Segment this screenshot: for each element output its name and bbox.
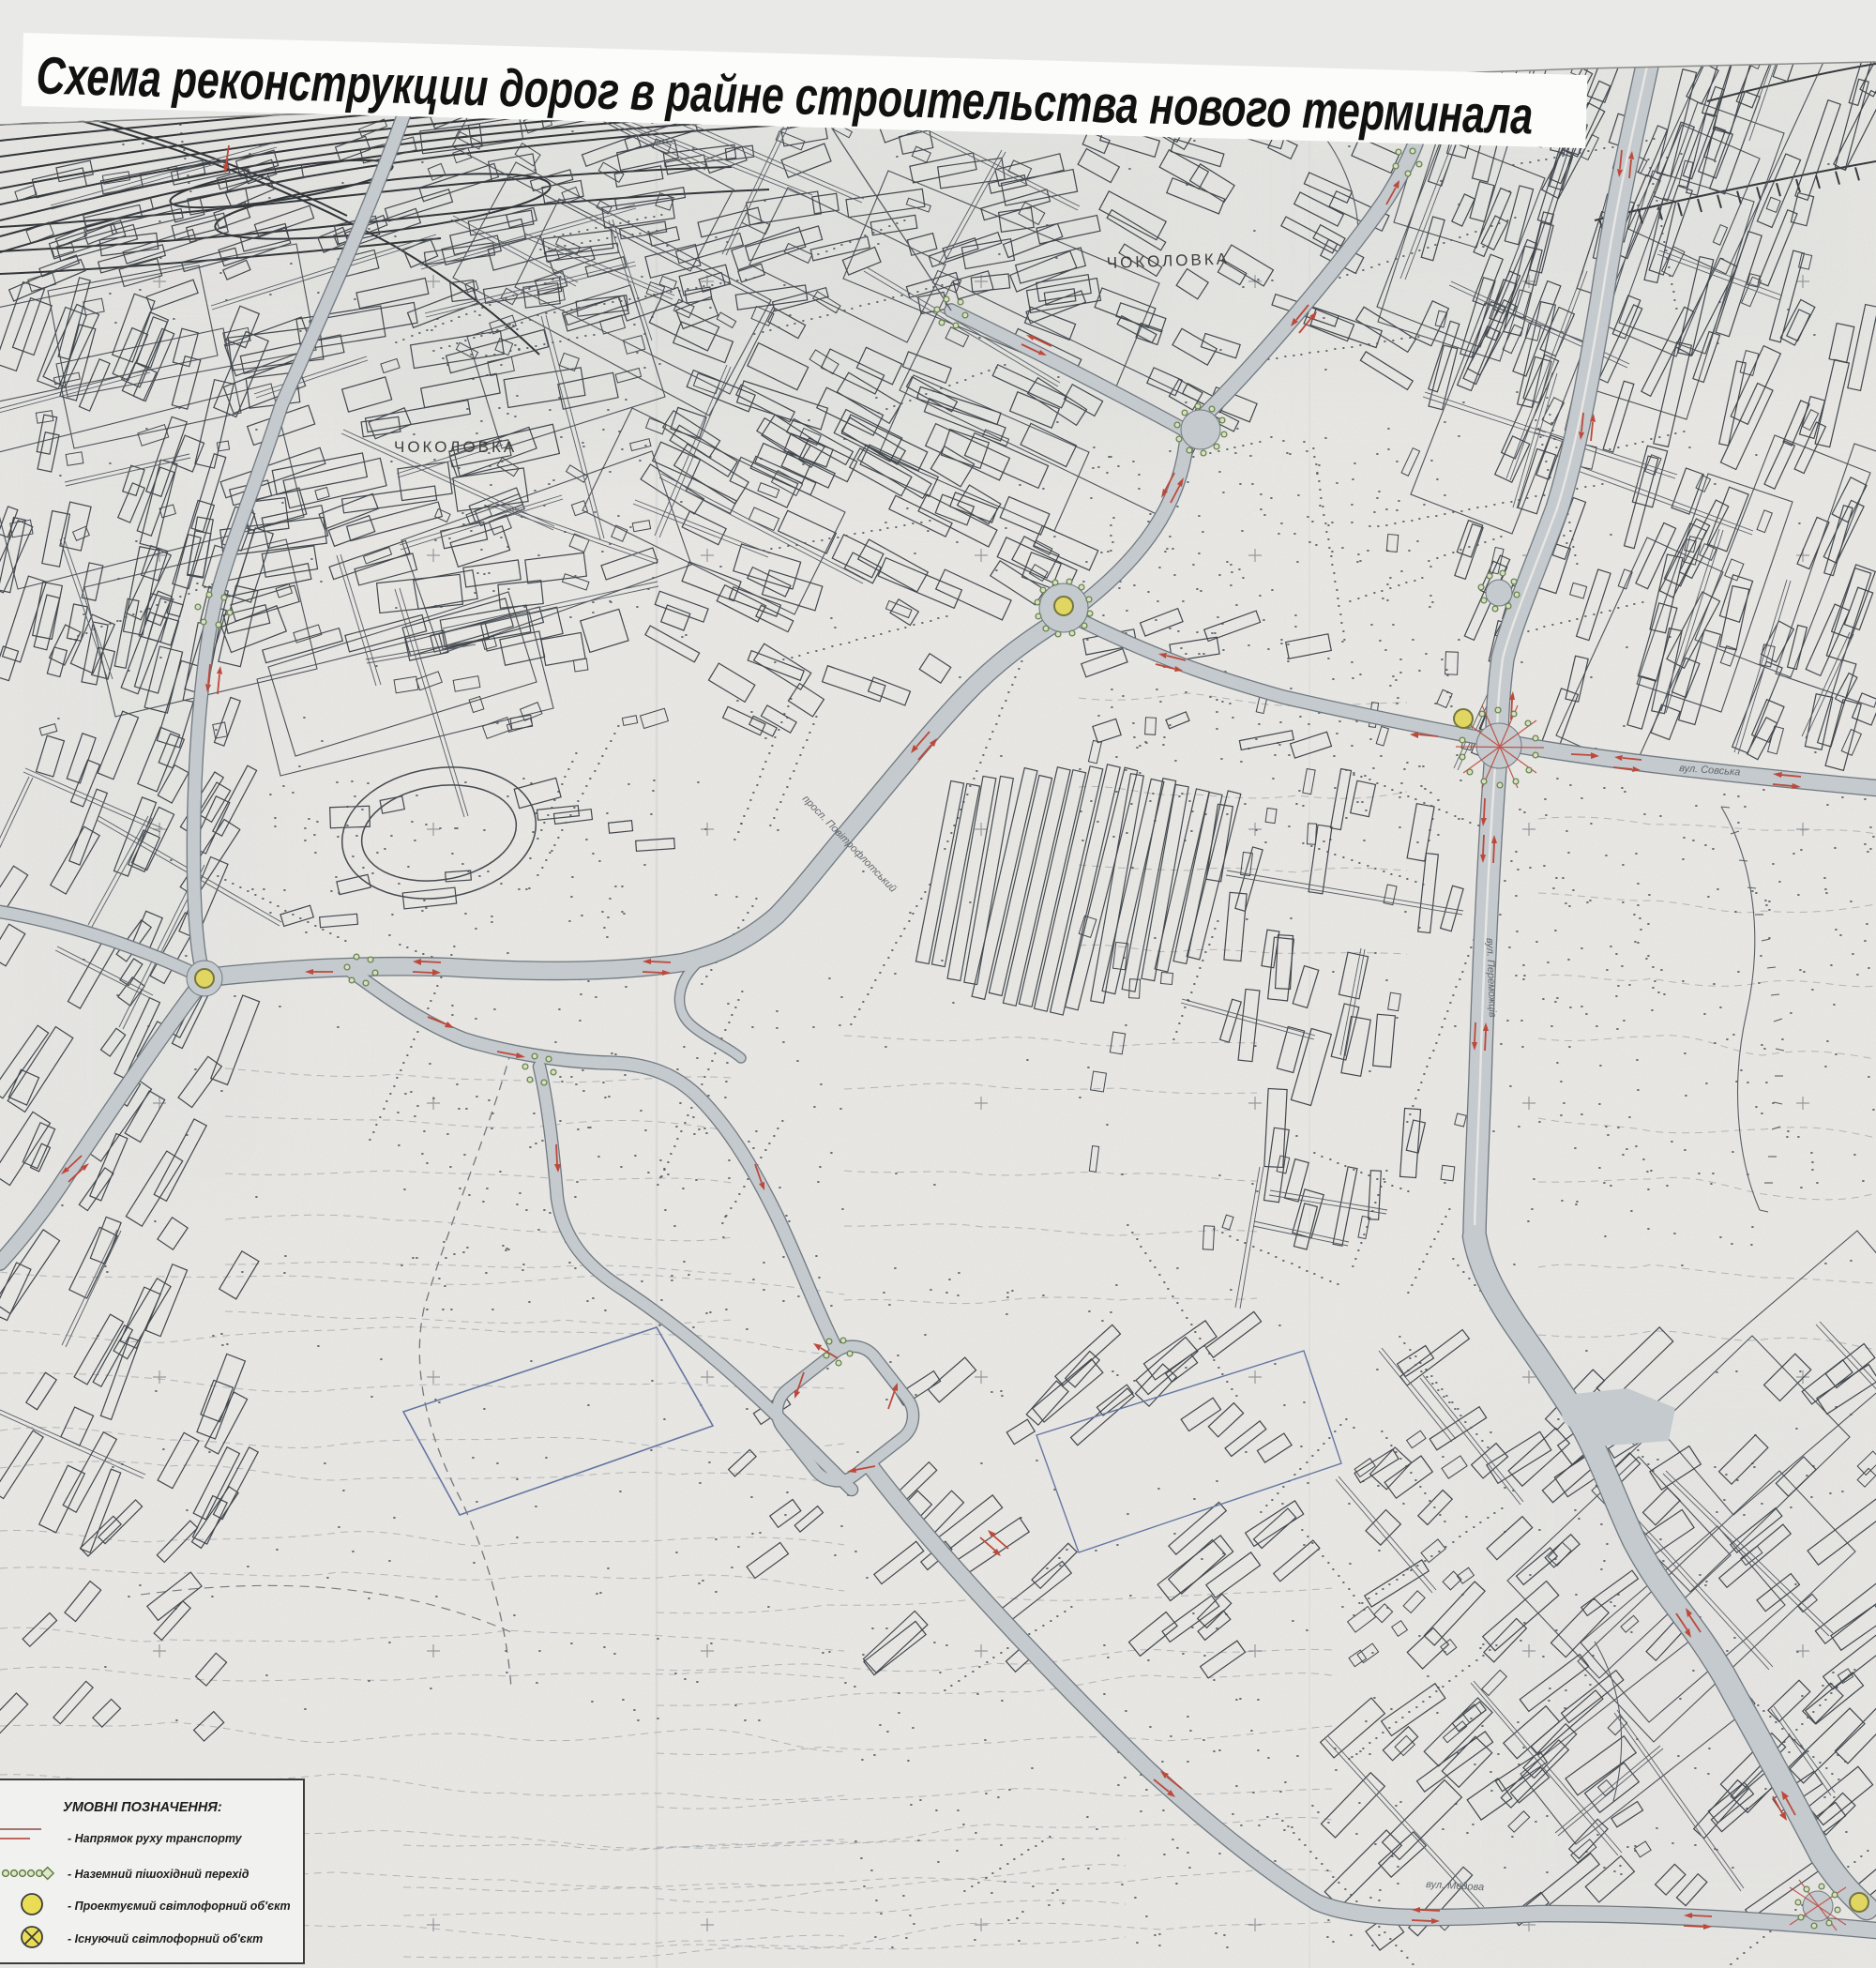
svg-text:- Проектуємий світлофорний об': - Проектуємий світлофорний об'єкт bbox=[68, 1900, 291, 1913]
svg-text:- Наземний пішохідний перехід: - Наземний пішохідний перехід bbox=[68, 1868, 250, 1881]
svg-text:УМОВНІ ПОЗНАЧЕННЯ:: УМОВНІ ПОЗНАЧЕННЯ: bbox=[63, 1800, 222, 1815]
svg-text:- Існуючий світлофорний об'єкт: - Існуючий світлофорний об'єкт bbox=[68, 1932, 263, 1945]
svg-text:- Напрямок руху транспорту: - Напрямок руху транспорту bbox=[68, 1832, 243, 1845]
